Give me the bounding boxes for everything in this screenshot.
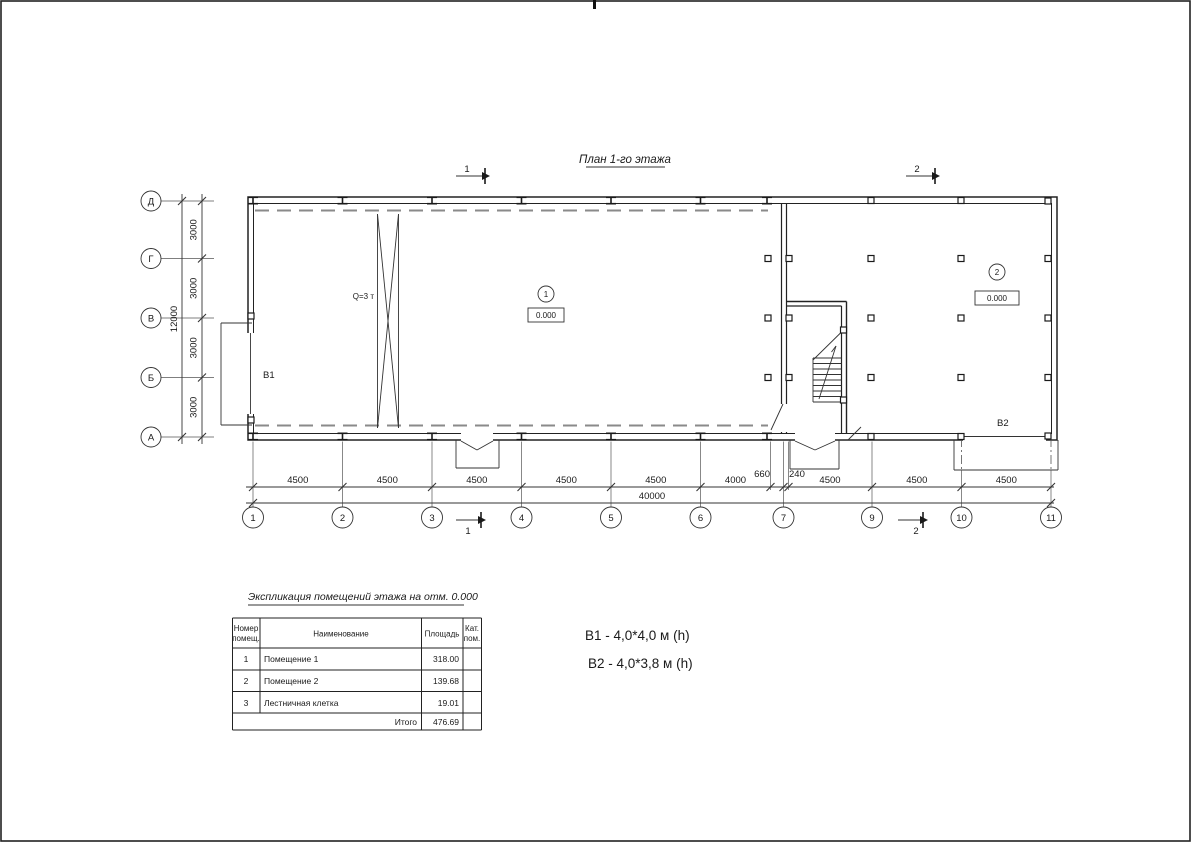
axis-label: А [148, 433, 155, 444]
axis-label: 11 [1046, 513, 1056, 524]
axis-label: Д [148, 197, 155, 208]
crane-runway [255, 211, 768, 426]
total-label: Итого [395, 717, 418, 727]
left-dimension-lines: 3000 3000 3000 3000 12000 [169, 194, 206, 444]
dim-label: 4500 [819, 475, 840, 486]
axis-label: В [148, 314, 154, 325]
axis-label: 5 [608, 513, 613, 524]
cell-num: 1 [244, 654, 249, 664]
stair-flight [813, 332, 842, 402]
room-tag-number: 1 [544, 290, 549, 299]
legend-b1: B1 - 4,0*4,0 м (h) [585, 628, 690, 643]
dim-label: 4500 [645, 475, 666, 486]
room-2-tag: 2 0.000 [975, 264, 1019, 305]
section-number: 1 [464, 164, 469, 175]
table-row: 3 Лестничная клетка 19.01 [244, 698, 460, 708]
drawing-title: План 1-го этажа [579, 154, 671, 167]
sheet-border [1, 1, 1190, 841]
dim-label: 3000 [189, 337, 200, 358]
cell-area: 139.68 [433, 676, 459, 686]
cell-name: Лестничная клетка [264, 698, 339, 708]
table-row: 2 Помещение 2 139.68 [244, 676, 460, 686]
columns-interior [248, 256, 1051, 424]
section-mark-2-bottom: 2 [898, 512, 928, 537]
table-row: 1 Помещение 1 318.00 [244, 654, 460, 664]
bottom-dimension-line-2: 40000 [246, 491, 1055, 507]
section-number: 2 [913, 526, 918, 537]
dim-label: 4000 [725, 475, 746, 486]
section-mark-2-top: 2 [906, 164, 940, 184]
axis-label: 4 [519, 513, 524, 524]
dim-total-width: 40000 [639, 491, 665, 502]
columns-top [248, 197, 1051, 204]
axis-label: 7 [781, 513, 786, 524]
dim-label: 660 [754, 469, 770, 480]
crane-capacity-label: Q=3 т [353, 292, 375, 301]
room-elevation: 0.000 [987, 294, 1008, 303]
cell-name: Помещение 2 [264, 676, 319, 686]
dim-label: 4500 [556, 475, 577, 486]
dim-total-height: 12000 [169, 306, 180, 332]
room-1-tag: 1 0.000 [528, 286, 564, 322]
header-name: Наименование [313, 630, 369, 639]
dim-label: 4500 [466, 475, 487, 486]
table-title: Экспликация помещений этажа на отм. 0.00… [248, 591, 478, 603]
header-cat: пом. [464, 634, 481, 643]
dim-label: 4500 [996, 475, 1017, 486]
entrance-vestibule-1 [456, 440, 499, 468]
explication-table: Экспликация помещений этажа на отм. 0.00… [232, 591, 481, 730]
gate-legend: B1 - 4,0*4,0 м (h) B2 - 4,0*3,8 м (h) [585, 628, 693, 671]
axis-label: 3 [429, 513, 434, 524]
building-walls [247, 197, 1058, 442]
room-tag-number: 2 [995, 268, 1000, 277]
dim-label: 240 [789, 469, 805, 480]
total-value: 476.69 [433, 717, 459, 727]
header-num: помещ. [232, 634, 260, 643]
fold-mark [593, 0, 596, 9]
axis-label: 9 [869, 513, 874, 524]
dim-label: 4500 [377, 475, 398, 486]
axis-label: 6 [698, 513, 703, 524]
columns-bottom [248, 433, 1051, 440]
axis-label: Б [148, 373, 154, 384]
axis-label: 10 [956, 513, 967, 524]
bottom-dimension-line-1: 4500 4500 4500 4500 4500 4000 660 240 45… [246, 469, 1055, 491]
table-total-row: Итого 476.69 [395, 717, 460, 727]
floor-plan-drawing: План 1-го этажа [0, 0, 1191, 842]
section-number: 1 [465, 526, 470, 537]
entrance-vestibule-2 [790, 440, 839, 469]
gate-b2-platform [954, 438, 1058, 470]
legend-b2: B2 - 4,0*3,8 м (h) [588, 656, 693, 671]
table-header-row: Номер помещ. Наименование Площадь Кат. п… [232, 624, 480, 643]
cell-name: Помещение 1 [264, 654, 319, 664]
section-mark-1-bottom: 1 [456, 512, 486, 537]
page-title: План 1-го этажа [579, 154, 671, 166]
dim-label: 4500 [287, 475, 308, 486]
section-number: 2 [914, 164, 919, 175]
cell-area: 19.01 [438, 698, 460, 708]
axis-label: 1 [250, 513, 255, 524]
cell-num: 3 [244, 698, 249, 708]
stairwell [787, 302, 847, 434]
drawing-sheet: План 1-го этажа [0, 0, 1191, 842]
gate-b1-label: B1 [263, 370, 275, 381]
axis-label: Г [148, 254, 153, 265]
cell-area: 318.00 [433, 654, 459, 664]
dim-label: 3000 [189, 397, 200, 418]
dim-label: 3000 [189, 219, 200, 240]
header-area: Площадь [425, 630, 460, 639]
gate-b2-label: B2 [997, 418, 1009, 429]
bottom-axis-bubbles: 1 2 3 4 5 6 7 9 10 11 [243, 507, 1062, 528]
section-mark-1-top: 1 [456, 164, 490, 184]
dim-label: 4500 [906, 475, 927, 486]
crane-brace [378, 214, 399, 428]
cell-num: 2 [244, 676, 249, 686]
dim-label: 3000 [189, 278, 200, 299]
header-num: Номер [234, 624, 259, 633]
room-elevation: 0.000 [536, 311, 557, 320]
axis-label: 2 [340, 513, 345, 524]
header-cat: Кат. [465, 624, 479, 633]
